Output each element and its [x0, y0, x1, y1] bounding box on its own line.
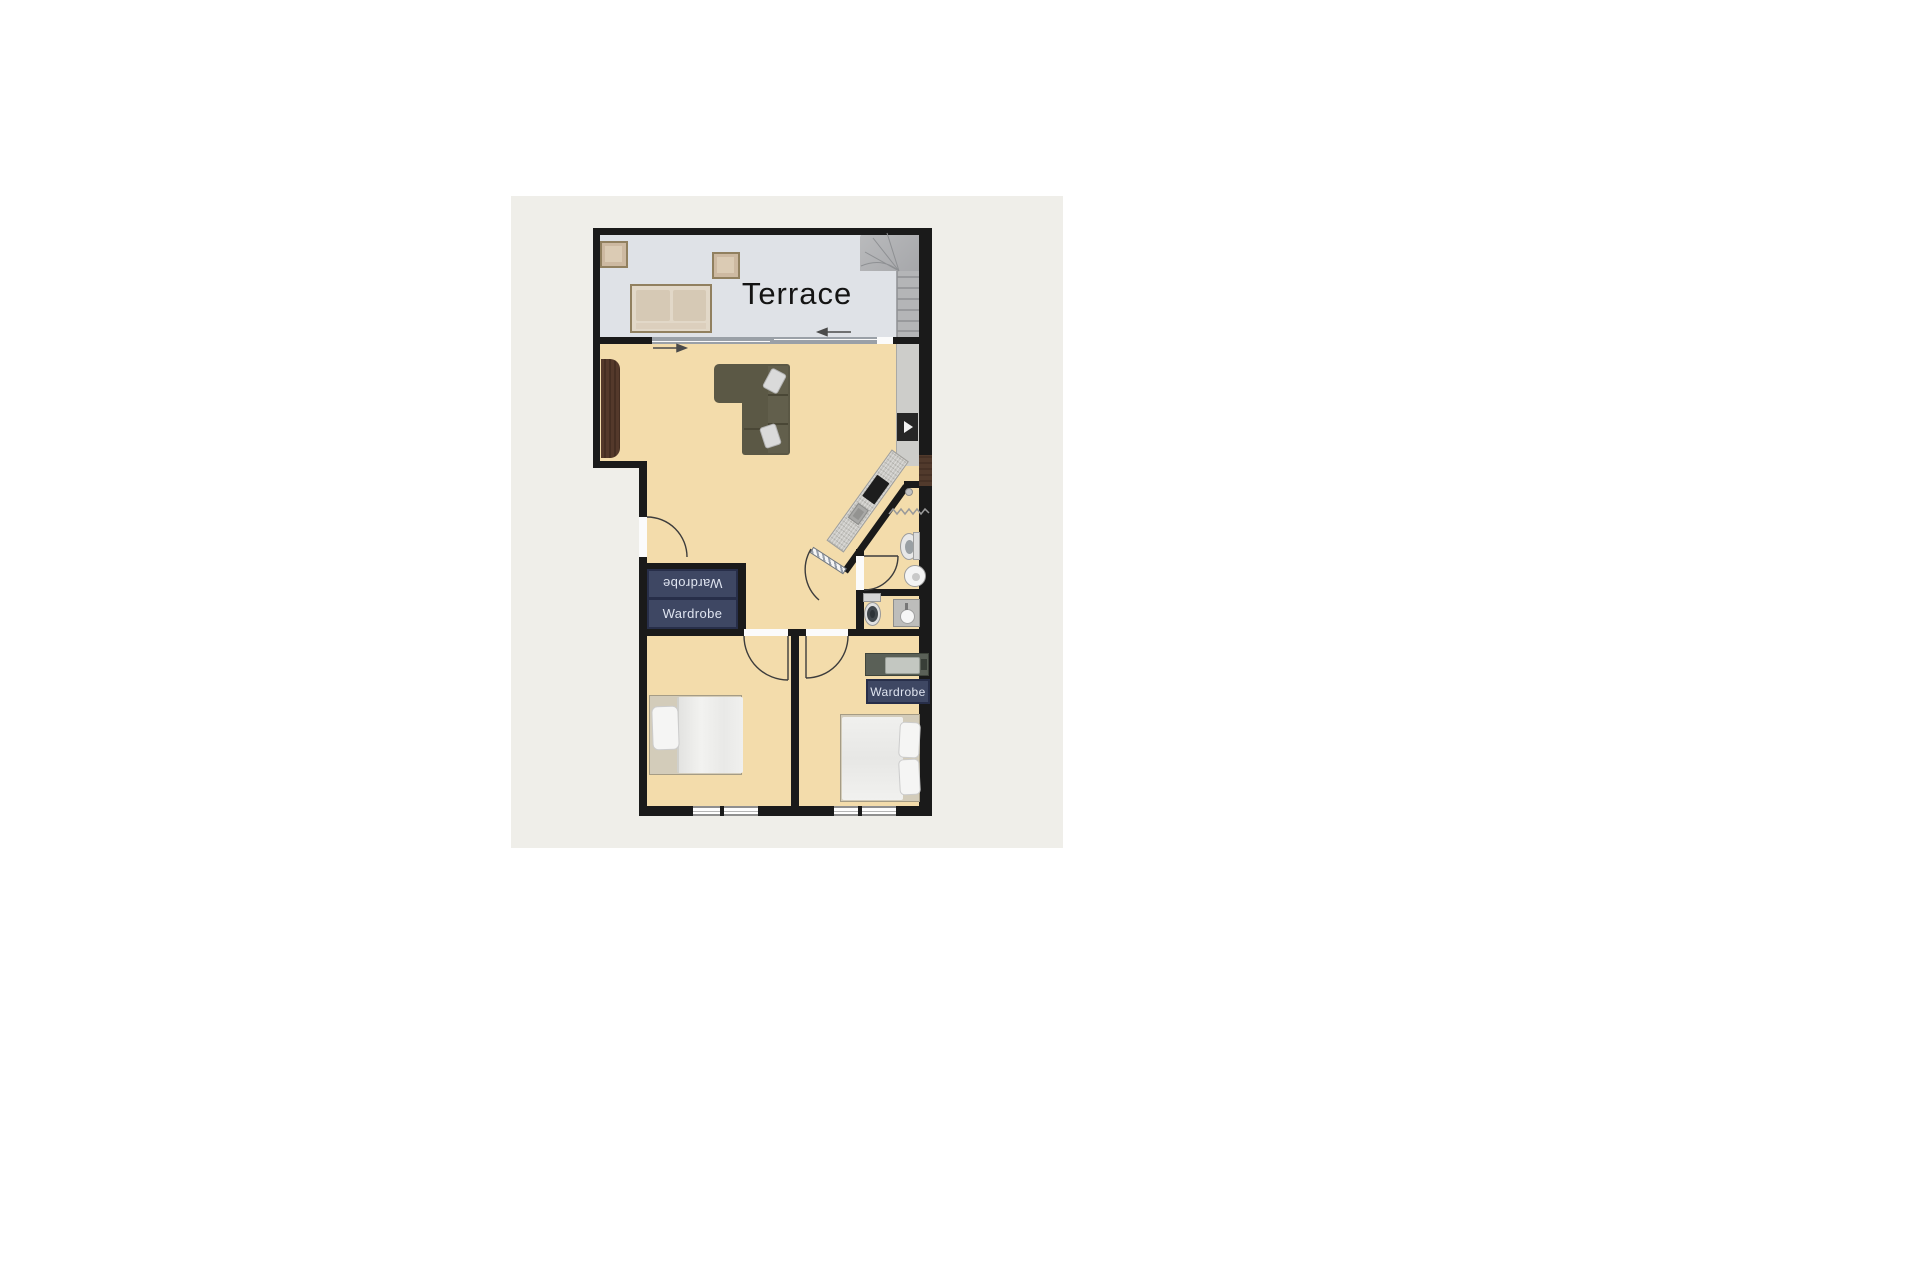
dresser-icon	[865, 653, 929, 676]
window-icon	[834, 806, 896, 816]
staircase-run	[897, 271, 920, 337]
wall	[593, 337, 652, 344]
wardrobe-icon: Wardrobe	[866, 679, 930, 704]
wall	[788, 629, 806, 636]
double-bed-icon	[649, 695, 742, 775]
table-top	[717, 257, 734, 273]
kitchen-counter-icon	[896, 344, 919, 466]
dresser-knob	[921, 659, 927, 670]
door-opening	[877, 337, 893, 344]
window-mullion	[834, 811, 896, 812]
door-opening	[639, 517, 647, 557]
outdoor-table-icon	[712, 252, 740, 279]
cushion-gap	[768, 394, 788, 396]
sink-basin	[853, 508, 865, 520]
table-top	[605, 246, 622, 262]
sliding-door-icon	[652, 337, 877, 344]
vanity-sink-icon	[893, 599, 920, 627]
bed-pillow	[898, 721, 921, 758]
cushion	[636, 290, 670, 321]
cushion	[673, 290, 706, 321]
wardrobe-icon: Wardrobe	[649, 571, 736, 597]
staircase-icon	[860, 232, 920, 271]
door-opening	[806, 629, 848, 636]
page: Terrace	[0, 0, 1920, 1280]
window-tick	[858, 806, 862, 816]
wall	[593, 228, 932, 235]
sliding-panel	[652, 339, 774, 341]
bed-pillow	[898, 758, 921, 795]
faucet-icon	[905, 603, 908, 610]
wardrobe-label: Wardrobe	[663, 606, 723, 621]
wall	[738, 563, 746, 636]
toilet-icon	[864, 602, 881, 626]
sliding-panel	[770, 340, 877, 342]
kitchen-appliance-icon	[897, 413, 918, 441]
pedestal-sink-icon	[904, 565, 926, 587]
toilet-tank	[863, 593, 881, 602]
wardrobe-group: Wardrobe Wardrobe	[647, 569, 738, 629]
toilet-bowl	[870, 610, 875, 618]
wardrobe-label: Wardrobe	[870, 685, 925, 699]
door-opening	[744, 629, 788, 636]
sideboard-icon	[601, 359, 620, 458]
window-icon	[693, 806, 758, 816]
wall	[639, 629, 744, 636]
bed-duvet	[677, 697, 743, 773]
wall	[758, 806, 834, 816]
wall	[639, 557, 647, 812]
bed-duvet	[842, 717, 903, 800]
window-tick	[720, 806, 724, 816]
corner-sofa-icon	[714, 364, 790, 455]
wall	[639, 461, 647, 517]
seat-edge	[636, 323, 706, 329]
wall	[893, 337, 932, 344]
bed-pillow	[651, 706, 680, 751]
wall	[639, 806, 693, 816]
outdoor-sofa-icon	[630, 284, 712, 333]
wall	[791, 636, 799, 812]
faucet-icon	[905, 488, 913, 496]
wall	[919, 228, 932, 816]
wardrobe-icon: Wardrobe	[649, 600, 736, 627]
terrace-room-label-text: Terrace	[742, 276, 852, 311]
door-opening	[856, 556, 864, 590]
wardrobe-label: Wardrobe	[663, 577, 723, 592]
appliance-arrow	[904, 421, 913, 433]
wall	[593, 228, 600, 468]
terrace-room-label: Terrace	[717, 276, 877, 312]
toilet-tank	[913, 532, 920, 560]
dresser-top	[885, 657, 920, 674]
outdoor-table-icon	[600, 241, 628, 268]
entry-door-icon	[919, 455, 932, 486]
sink-basin	[900, 609, 915, 624]
double-bed-icon	[840, 714, 920, 802]
window-mullion	[693, 811, 758, 812]
sink-drain	[912, 573, 920, 581]
